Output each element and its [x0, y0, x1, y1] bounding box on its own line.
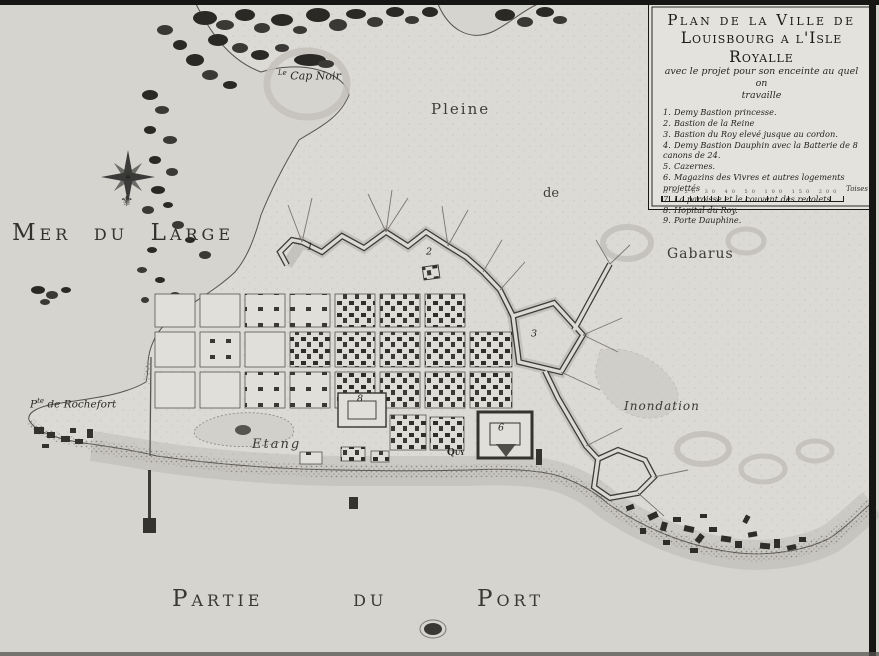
label-gabarus: Gabarus [667, 246, 734, 262]
legend-item-label: Cazernes. [674, 161, 715, 171]
map-subtitle-line2: travaille [659, 90, 864, 102]
scale-bar-line [661, 196, 844, 202]
legend-item: 9.Porte Dauphine. [663, 215, 864, 226]
legend-item: 1.Demy Bastion princesse. [663, 107, 864, 118]
label-de: de [543, 186, 559, 201]
label-quay: Quy [447, 448, 464, 458]
legend-item-label: Hopital du Roy. [674, 205, 738, 215]
legend-item-number: 5. [663, 161, 674, 172]
scale-unit-label: Toises [846, 185, 868, 193]
legend-item-number: 4. [663, 140, 674, 151]
photo-edge-bottom [0, 652, 879, 656]
title-cartouche: Plan de la Ville de Louisbourg a l'Isle … [648, 3, 875, 210]
photo-edge-right [869, 0, 876, 656]
fleur-de-lis-icon: ⚜ [120, 192, 133, 210]
map-subtitle-line1: avec le projet pour son enceinte au quel… [659, 66, 864, 90]
map-title-line2: Louisbourg a l'Isle Royalle [659, 29, 864, 66]
harbor-islet [420, 620, 446, 638]
label-pleine: Pleine [431, 100, 490, 118]
legend-item-number: 6. [663, 172, 674, 183]
legend-item-number: 8. [663, 205, 674, 216]
legend-item-label: Bastion de la Reine [674, 118, 754, 128]
legend-item-number: 9. [663, 215, 674, 226]
rochefort-sup: te [37, 397, 44, 405]
legend-item: 3.Bastion du Roy elevé jusque au cordon. [663, 129, 864, 140]
cap-noir-prefix: Le [278, 69, 287, 77]
partie-word: Partie [172, 586, 263, 612]
large-word: Large [151, 220, 234, 246]
legend-item-label: Bastion du Roy elevé jusque au cordon. [674, 129, 838, 139]
legend-item-label: Demy Bastion Dauphin avec la Batterie de… [663, 140, 858, 161]
label-pointe-rochefort: Pte de Rochefort [30, 397, 116, 411]
legend-item-label: Porte Dauphine. [674, 215, 741, 225]
rochefort-rest: de Rochefort [44, 399, 116, 411]
scale-bar: 10 20 30 40 50 100 150 200 Toises [661, 189, 844, 202]
scale-tick-numbers: 10 20 30 40 50 100 150 200 [661, 189, 844, 196]
du-word: du [353, 586, 387, 612]
bastion-number-marker: 6 [498, 423, 504, 434]
map-title-line1: Plan de la Ville de [659, 12, 864, 29]
bastion-number-marker: 3 [531, 329, 537, 340]
magazins-building [478, 412, 532, 458]
label-inondation: Inondation [624, 399, 700, 413]
port-word: Port [477, 586, 544, 612]
legend-list: 1.Demy Bastion princesse.2.Bastion de la… [659, 107, 864, 226]
photo-edge-top [0, 0, 879, 5]
legend-item: 8.Hopital du Roy. [663, 205, 864, 216]
legend-item: 2.Bastion de la Reine [663, 118, 864, 129]
label-cap-noir: Le Cap Noir [278, 69, 341, 83]
legend-item-number: 3. [663, 129, 674, 140]
bastion-number-marker: 8 [357, 394, 363, 405]
cap-noir-hill [267, 51, 347, 117]
legend-item-number: 1. [663, 107, 674, 118]
cap-noir-name: Cap Noir [290, 70, 341, 83]
sea-label-mer-du-large: Mer du Large [12, 220, 234, 246]
bastion2-building [422, 265, 440, 280]
label-etang: Etang [252, 437, 301, 452]
bastion-number-marker: 2 [426, 247, 432, 258]
bastion-number-marker: 1 [307, 242, 313, 253]
legend-item-label: Demy Bastion princesse. [674, 107, 777, 117]
du-word: du [94, 220, 128, 246]
map-photo: Mer du Large Partie du Port Pleine de Ga… [0, 0, 879, 656]
sea-label-partie-du-port: Partie du Port [172, 586, 544, 612]
legend-item: 4.Demy Bastion Dauphin avec la Batterie … [663, 140, 864, 162]
legend-item-number: 2. [663, 118, 674, 129]
mer-word: Mer [12, 220, 71, 246]
legend-item: 5.Cazernes. [663, 161, 864, 172]
